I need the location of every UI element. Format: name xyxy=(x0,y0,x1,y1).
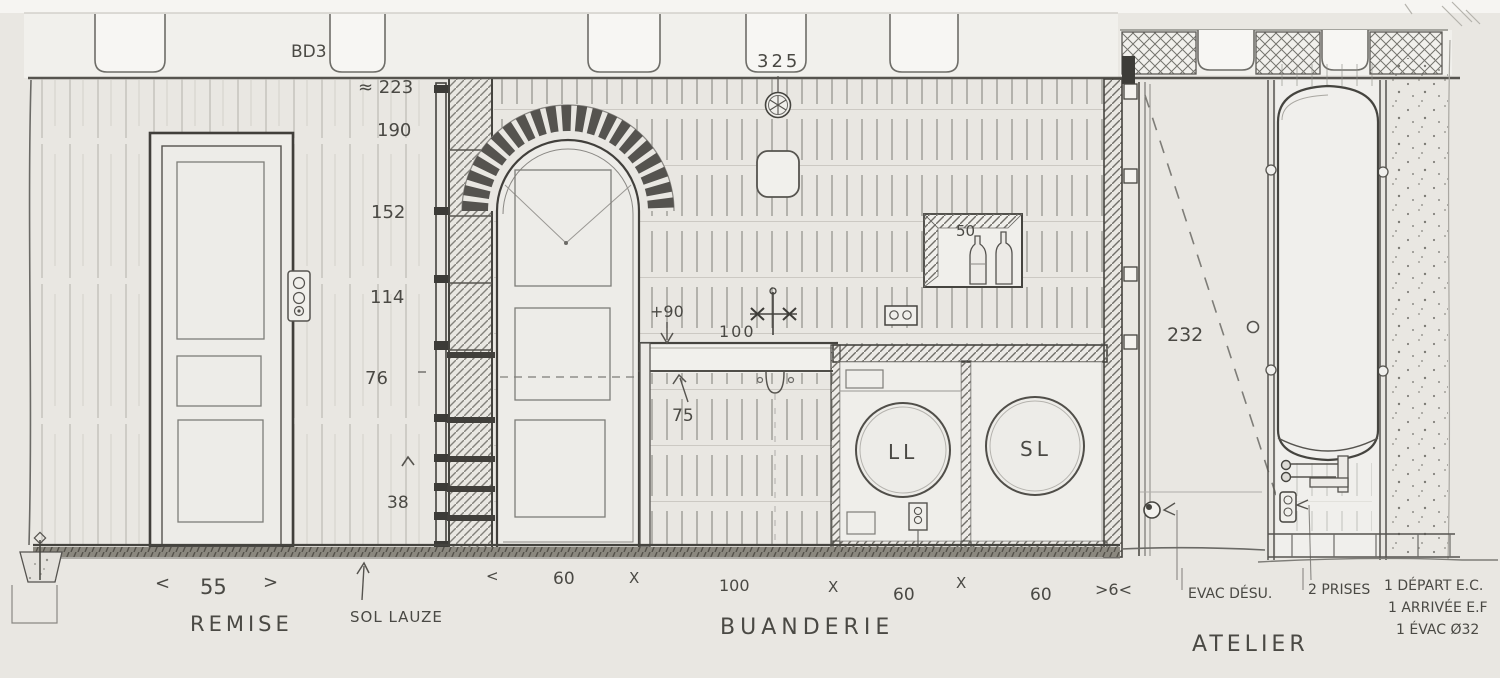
note-evac-32: 1 ÉVAC Ø32 xyxy=(1396,621,1479,638)
worktop-beam xyxy=(833,345,1107,362)
bottom-dim: 100 xyxy=(719,576,750,595)
bottom-dim: 60 xyxy=(553,569,575,589)
note-arrivee-ef: 1 ARRIVÉE E.F xyxy=(1388,599,1488,616)
bottom-dim: < xyxy=(486,567,499,585)
counter-support xyxy=(640,343,650,547)
machine-label-dryer: SL xyxy=(1020,437,1052,461)
note-depart-ec: 1 DÉPART E.C. xyxy=(1384,577,1483,594)
machine-divider xyxy=(961,361,971,553)
left-post xyxy=(831,345,840,553)
ceiling-notch xyxy=(588,14,660,72)
stone-wall-stipple xyxy=(1392,58,1448,558)
sketch-elevation-drawing: BD3 325 ≈ 223 190 152 114 76 38 xyxy=(0,0,1500,678)
bottom-dim: 60 xyxy=(1030,585,1052,605)
height-dim: 114 xyxy=(370,287,404,308)
hinge xyxy=(1124,267,1137,281)
washing-machine: LL xyxy=(840,362,961,553)
buanderie-door xyxy=(497,140,639,548)
paper-top-margin xyxy=(0,0,1500,13)
bottom-dim: >6< xyxy=(1095,580,1132,599)
hinge xyxy=(1124,335,1137,349)
machine-label-washer: LL xyxy=(888,440,918,464)
note-2-prises: 2 PRISES xyxy=(1308,582,1370,598)
ceiling-notch xyxy=(890,14,958,72)
bottom-dim: X xyxy=(828,578,838,596)
room-label-buanderie: BUANDERIE xyxy=(720,615,894,640)
remise-width-label: 55 xyxy=(200,575,227,599)
dryer-machine: SL xyxy=(971,362,1102,541)
wall-niche: 50 xyxy=(924,214,1022,287)
room-label-remise: REMISE xyxy=(190,612,293,636)
ref-label-bd3: BD3 xyxy=(291,42,327,62)
height-dim: 38 xyxy=(387,493,409,513)
dim-chevron: > xyxy=(263,572,278,593)
ceiling-notch xyxy=(330,14,385,72)
bottom-dim: 60 xyxy=(893,585,915,605)
counter-width-label: 100 xyxy=(719,322,756,341)
hinge xyxy=(1124,84,1137,99)
door-knob xyxy=(1248,322,1259,333)
top-dim-label: 325 xyxy=(757,51,800,72)
ceiling-light-fixture xyxy=(757,151,799,197)
room-label-atelier: ATELIER xyxy=(1192,632,1309,657)
floor-label: SOL LAUZE xyxy=(350,608,443,626)
height-dim: ≈ 223 xyxy=(358,77,413,98)
light-switch xyxy=(288,271,310,321)
note-evac-desu: EVAC DÉSU. xyxy=(1188,585,1272,602)
hinge xyxy=(1124,169,1137,183)
ceiling-notch xyxy=(95,14,165,72)
height-dim: 190 xyxy=(377,120,411,141)
water-heater xyxy=(1278,86,1378,460)
drawing-canvas: BD3 325 ≈ 223 190 152 114 76 38 xyxy=(0,0,1500,678)
under-counter-label: 75 xyxy=(672,406,694,426)
ceiling-notch xyxy=(1198,30,1254,70)
bottom-dim: X xyxy=(629,569,639,587)
height-dim: 152 xyxy=(371,202,405,223)
bottom-dim: X xyxy=(956,574,966,592)
remise-door xyxy=(150,133,293,547)
laundry-machines: LL SL xyxy=(831,345,1107,553)
wall-socket xyxy=(885,306,917,325)
height-dim: 76 xyxy=(365,368,388,389)
dim-chevron: < xyxy=(155,573,170,594)
door-height-label: 232 xyxy=(1167,324,1203,346)
counter-height-label: +90 xyxy=(650,302,684,321)
niche-dim-label: 50 xyxy=(956,222,975,240)
